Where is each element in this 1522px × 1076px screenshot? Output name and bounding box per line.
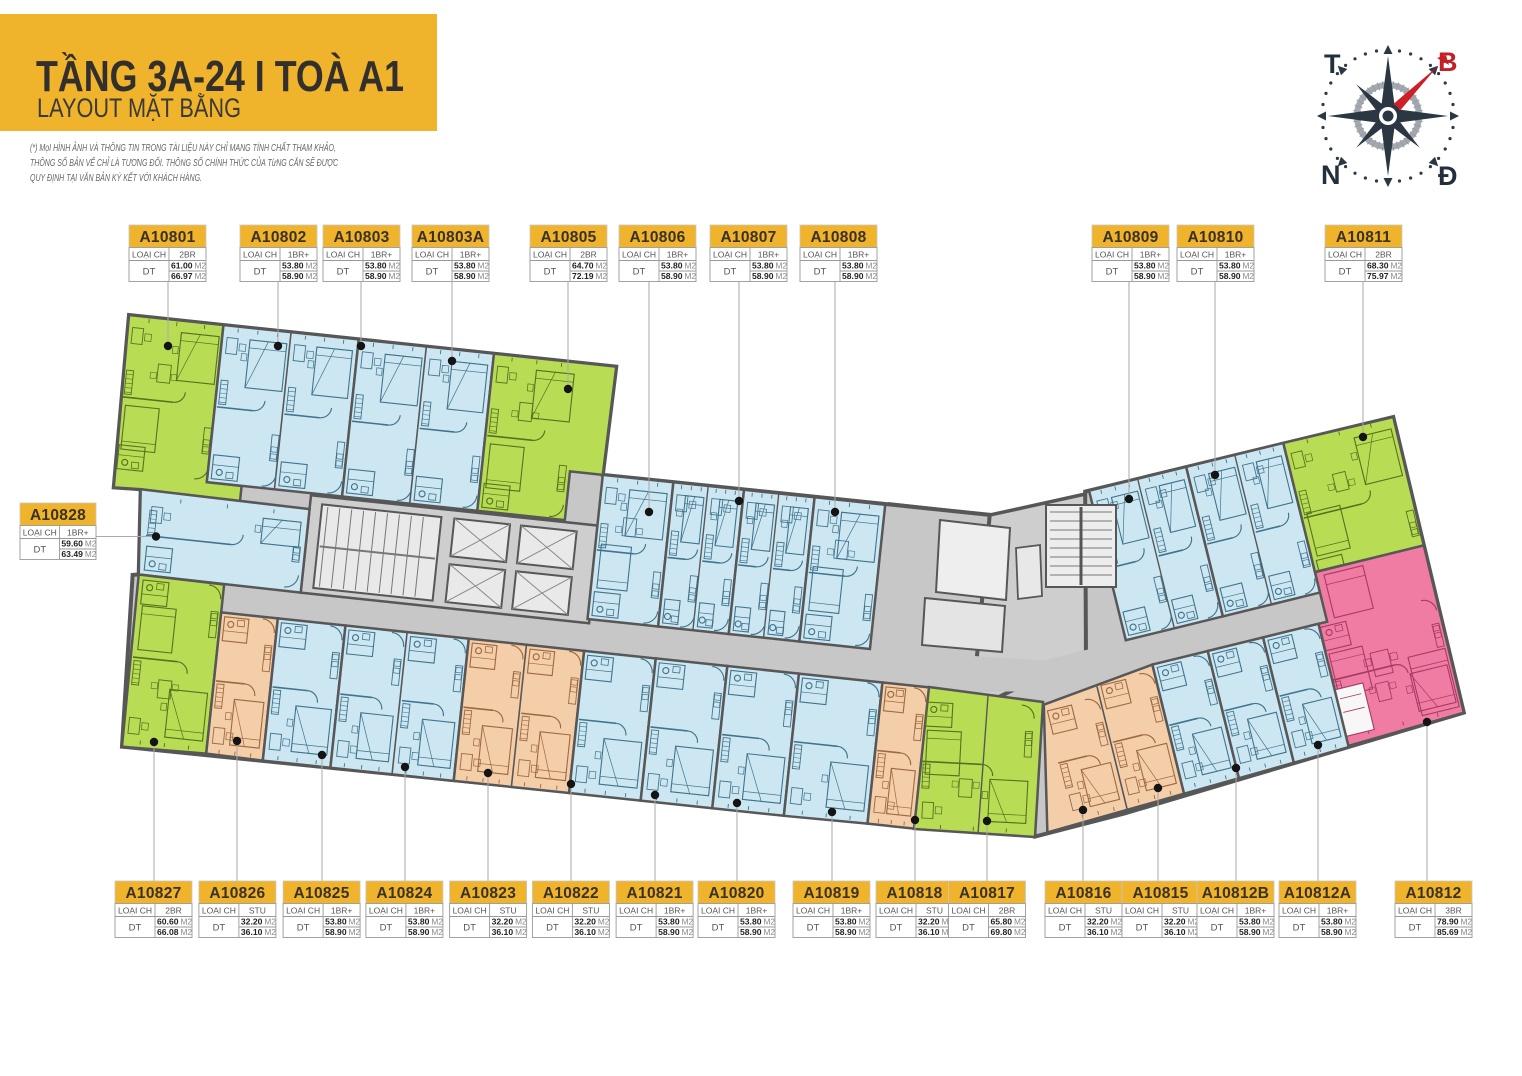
svg-text:58.90: 58.90 bbox=[1219, 271, 1241, 281]
svg-text:A10811: A10811 bbox=[1336, 229, 1391, 246]
svg-text:85.69: 85.69 bbox=[1437, 927, 1459, 937]
svg-text:STU: STU bbox=[500, 906, 517, 916]
svg-text:DT: DT bbox=[380, 923, 393, 934]
svg-text:A10823: A10823 bbox=[460, 885, 516, 902]
svg-text:DT: DT bbox=[633, 267, 646, 278]
svg-text:2BR: 2BR bbox=[580, 250, 597, 260]
svg-text:53.80: 53.80 bbox=[1239, 917, 1261, 927]
svg-text:36.10: 36.10 bbox=[1164, 927, 1186, 937]
svg-text:DT: DT bbox=[143, 267, 156, 278]
svg-text:A10805: A10805 bbox=[540, 229, 596, 246]
svg-text:M2: M2 bbox=[866, 261, 878, 271]
svg-text:32.20: 32.20 bbox=[574, 917, 596, 927]
svg-text:A10806: A10806 bbox=[629, 229, 685, 246]
svg-text:A10827: A10827 bbox=[125, 885, 181, 902]
svg-text:M2: M2 bbox=[181, 917, 193, 927]
svg-text:LOẠI CH: LOẠI CH bbox=[879, 906, 913, 916]
svg-text:M2: M2 bbox=[1014, 927, 1026, 937]
svg-text:DT: DT bbox=[213, 923, 226, 934]
svg-text:53.80: 53.80 bbox=[1219, 261, 1241, 271]
svg-text:61.00: 61.00 bbox=[171, 261, 193, 271]
svg-text:LOẠI CH: LOẠI CH bbox=[415, 250, 449, 260]
svg-text:36.10: 36.10 bbox=[241, 927, 263, 937]
svg-text:LOẠI CH: LOẠI CH bbox=[796, 906, 830, 916]
svg-text:M2: M2 bbox=[764, 927, 776, 937]
svg-text:M2: M2 bbox=[598, 927, 610, 937]
svg-text:58.90: 58.90 bbox=[325, 927, 347, 937]
svg-text:M2: M2 bbox=[306, 261, 318, 271]
svg-text:M2: M2 bbox=[515, 927, 527, 937]
svg-text:75.97: 75.97 bbox=[1367, 271, 1389, 281]
svg-text:53.80: 53.80 bbox=[325, 917, 347, 927]
svg-text:1BR+: 1BR+ bbox=[758, 250, 780, 260]
svg-text:LOẠI CH: LOẠI CH bbox=[369, 906, 403, 916]
svg-text:DT: DT bbox=[712, 923, 725, 934]
svg-text:M2: M2 bbox=[1243, 261, 1255, 271]
svg-text:LOẠI CH: LOẠI CH bbox=[951, 906, 985, 916]
svg-text:M2: M2 bbox=[764, 917, 776, 927]
svg-text:M2: M2 bbox=[349, 927, 361, 937]
svg-text:1BR+: 1BR+ bbox=[1140, 250, 1162, 260]
svg-text:M2: M2 bbox=[264, 917, 276, 927]
svg-text:LOẠI CH: LOẠI CH bbox=[453, 906, 487, 916]
svg-text:A10826: A10826 bbox=[209, 885, 265, 902]
svg-text:53.80: 53.80 bbox=[408, 917, 430, 927]
svg-text:32.20: 32.20 bbox=[241, 917, 263, 927]
svg-text:2BR: 2BR bbox=[999, 906, 1016, 916]
svg-text:DT: DT bbox=[630, 923, 643, 934]
svg-text:1BR+: 1BR+ bbox=[67, 528, 89, 538]
svg-text:LAYOUT MẶT BẰNG: LAYOUT MẶT BẰNG bbox=[37, 92, 241, 123]
svg-text:A10801: A10801 bbox=[139, 229, 195, 246]
svg-text:LOẠI CH: LOẠI CH bbox=[622, 250, 656, 260]
svg-text:DT: DT bbox=[544, 267, 557, 278]
svg-text:M2: M2 bbox=[389, 271, 401, 281]
svg-text:2BR: 2BR bbox=[1375, 250, 1392, 260]
svg-text:DT: DT bbox=[890, 923, 903, 934]
svg-text:LOẠI CH: LOẠI CH bbox=[803, 250, 837, 260]
svg-text:M2: M2 bbox=[431, 917, 443, 927]
svg-text:58.90: 58.90 bbox=[842, 271, 864, 281]
svg-text:32.20: 32.20 bbox=[1087, 917, 1109, 927]
svg-text:32.20: 32.20 bbox=[492, 917, 514, 927]
svg-text:DT: DT bbox=[426, 267, 439, 278]
svg-text:STU: STU bbox=[1095, 906, 1112, 916]
svg-text:LOẠI CH: LOẠI CH bbox=[202, 906, 236, 916]
svg-text:DT: DT bbox=[724, 267, 737, 278]
svg-text:58.90: 58.90 bbox=[752, 271, 774, 281]
svg-text:M2: M2 bbox=[264, 927, 276, 937]
svg-text:53.80: 53.80 bbox=[1134, 261, 1156, 271]
svg-text:M2: M2 bbox=[682, 917, 694, 927]
svg-text:60.60: 60.60 bbox=[157, 917, 179, 927]
svg-text:DT: DT bbox=[814, 267, 827, 278]
svg-text:LOẠI CH: LOẠI CH bbox=[619, 906, 653, 916]
svg-text:LOẠI CH: LOẠI CH bbox=[1048, 906, 1082, 916]
svg-text:M2: M2 bbox=[478, 271, 490, 281]
svg-text:2BR: 2BR bbox=[179, 250, 196, 260]
svg-text:M2: M2 bbox=[598, 917, 610, 927]
svg-text:53.80: 53.80 bbox=[752, 261, 774, 271]
svg-text:A10822: A10822 bbox=[543, 885, 599, 902]
svg-text:72.19: 72.19 bbox=[572, 271, 594, 281]
svg-text:M2: M2 bbox=[349, 917, 361, 927]
svg-text:58.90: 58.90 bbox=[408, 927, 430, 937]
svg-text:64.70: 64.70 bbox=[572, 261, 594, 271]
svg-text:M2: M2 bbox=[1111, 927, 1123, 937]
svg-text:DT: DT bbox=[33, 545, 46, 556]
svg-text:A10810: A10810 bbox=[1187, 229, 1243, 246]
svg-text:65.80: 65.80 bbox=[991, 917, 1013, 927]
svg-text:LOẠI CH: LOẠI CH bbox=[1200, 906, 1234, 916]
svg-text:DT: DT bbox=[807, 923, 820, 934]
svg-text:M2: M2 bbox=[389, 261, 401, 271]
svg-text:M2: M2 bbox=[859, 927, 871, 937]
svg-text:53.80: 53.80 bbox=[835, 917, 857, 927]
svg-text:A10821: A10821 bbox=[627, 885, 683, 902]
svg-text:M2: M2 bbox=[431, 927, 443, 937]
svg-text:STU: STU bbox=[926, 906, 943, 916]
svg-text:LOẠI CH: LOẠI CH bbox=[132, 250, 166, 260]
svg-text:A10825: A10825 bbox=[294, 885, 350, 902]
svg-text:68.30: 68.30 bbox=[1367, 261, 1389, 271]
svg-text:LOẠI CH: LOẠI CH bbox=[1095, 250, 1129, 260]
svg-text:M2: M2 bbox=[1263, 917, 1275, 927]
svg-text:M2: M2 bbox=[1345, 927, 1357, 937]
svg-text:58.90: 58.90 bbox=[740, 927, 762, 937]
svg-text:DT: DT bbox=[1409, 923, 1422, 934]
svg-text:M2: M2 bbox=[1111, 917, 1123, 927]
svg-text:DT: DT bbox=[1136, 923, 1149, 934]
svg-text:M2: M2 bbox=[195, 271, 207, 281]
svg-text:M2: M2 bbox=[1014, 917, 1026, 927]
svg-text:DT: DT bbox=[546, 923, 559, 934]
svg-text:DT: DT bbox=[1339, 267, 1352, 278]
svg-text:M2: M2 bbox=[1391, 271, 1403, 281]
svg-text:LOẠI CH: LOẠI CH bbox=[701, 906, 735, 916]
svg-text:M2: M2 bbox=[776, 261, 788, 271]
svg-text:A10824: A10824 bbox=[376, 885, 432, 902]
svg-text:DT: DT bbox=[254, 267, 267, 278]
svg-text:M2: M2 bbox=[1461, 917, 1473, 927]
svg-text:DT: DT bbox=[1191, 267, 1204, 278]
svg-text:M2: M2 bbox=[866, 271, 878, 281]
svg-text:63.49: 63.49 bbox=[61, 549, 83, 559]
svg-text:A10815: A10815 bbox=[1132, 885, 1188, 902]
svg-text:36.10: 36.10 bbox=[492, 927, 514, 937]
svg-text:58.90: 58.90 bbox=[454, 271, 476, 281]
svg-text:A10809: A10809 bbox=[1102, 229, 1158, 246]
svg-text:LOẠI CH: LOẠI CH bbox=[243, 250, 277, 260]
svg-text:DT: DT bbox=[129, 923, 142, 934]
svg-text:1BR+: 1BR+ bbox=[841, 906, 863, 916]
svg-text:A10803: A10803 bbox=[333, 229, 389, 246]
svg-text:A10802: A10802 bbox=[250, 229, 306, 246]
svg-text:A10820: A10820 bbox=[708, 885, 764, 902]
svg-text:LOẠI CH: LOẠI CH bbox=[713, 250, 747, 260]
svg-text:58.90: 58.90 bbox=[282, 271, 304, 281]
svg-text:M2: M2 bbox=[1243, 271, 1255, 281]
svg-text:M2: M2 bbox=[306, 271, 318, 281]
svg-text:THÔNG SỐ BẢN VẾ CHỈ LÀ TƯƠNG Đ: THÔNG SỐ BẢN VẾ CHỈ LÀ TƯƠNG ĐỐI. THÔNG … bbox=[30, 156, 338, 169]
svg-text:LOẠI CH: LOẠI CH bbox=[286, 906, 320, 916]
svg-text:M2: M2 bbox=[776, 271, 788, 281]
svg-text:M2: M2 bbox=[685, 271, 697, 281]
svg-text:A10808: A10808 bbox=[810, 229, 866, 246]
svg-text:53.80: 53.80 bbox=[740, 917, 762, 927]
svg-text:LOẠI CH: LOẠI CH bbox=[1328, 250, 1362, 260]
svg-text:1BR+: 1BR+ bbox=[331, 906, 353, 916]
svg-text:STU: STU bbox=[582, 906, 599, 916]
svg-text:DT: DT bbox=[463, 923, 476, 934]
svg-text:53.80: 53.80 bbox=[842, 261, 864, 271]
svg-text:A10803A: A10803A bbox=[417, 229, 485, 246]
svg-text:66.97: 66.97 bbox=[171, 271, 193, 281]
svg-text:M2: M2 bbox=[85, 549, 97, 559]
svg-text:M2: M2 bbox=[478, 261, 490, 271]
svg-text:M2: M2 bbox=[685, 261, 697, 271]
svg-text:STU: STU bbox=[249, 906, 266, 916]
svg-text:59.60: 59.60 bbox=[61, 539, 83, 549]
svg-text:Đ: Đ bbox=[1438, 161, 1458, 191]
svg-text:LOẠI CH: LOẠI CH bbox=[533, 250, 567, 260]
svg-text:M2: M2 bbox=[1345, 917, 1357, 927]
svg-text:32.20: 32.20 bbox=[1164, 917, 1186, 927]
svg-text:DT: DT bbox=[297, 923, 310, 934]
svg-text:LOẠI CH: LOẠI CH bbox=[326, 250, 360, 260]
svg-text:53.80: 53.80 bbox=[282, 261, 304, 271]
svg-text:M2: M2 bbox=[1461, 927, 1473, 937]
svg-text:M2: M2 bbox=[596, 271, 608, 281]
svg-text:69.80: 69.80 bbox=[991, 927, 1013, 937]
svg-text:A10807: A10807 bbox=[720, 229, 776, 246]
svg-text:STU: STU bbox=[1172, 906, 1189, 916]
svg-text:DT: DT bbox=[1059, 923, 1072, 934]
svg-text:3BR: 3BR bbox=[1445, 906, 1462, 916]
svg-text:LOẠI CH: LOẠI CH bbox=[1398, 906, 1432, 916]
svg-text:36.10: 36.10 bbox=[918, 927, 940, 937]
svg-text:DT: DT bbox=[1293, 923, 1306, 934]
svg-text:M2: M2 bbox=[181, 927, 193, 937]
svg-text:A10828: A10828 bbox=[30, 507, 86, 524]
svg-text:M2: M2 bbox=[195, 261, 207, 271]
svg-text:A10816: A10816 bbox=[1055, 885, 1111, 902]
svg-text:LOẠI CH: LOẠI CH bbox=[118, 906, 152, 916]
svg-text:1BR+: 1BR+ bbox=[746, 906, 768, 916]
svg-text:1BR+: 1BR+ bbox=[1245, 906, 1267, 916]
svg-text:36.10: 36.10 bbox=[1087, 927, 1109, 937]
svg-text:1BR+: 1BR+ bbox=[460, 250, 482, 260]
svg-text:T: T bbox=[1324, 49, 1341, 79]
svg-text:A10812B: A10812B bbox=[1202, 885, 1270, 902]
svg-text:A10817: A10817 bbox=[959, 885, 1015, 902]
svg-text:LOẠI CH: LOẠI CH bbox=[1282, 906, 1316, 916]
svg-text:58.90: 58.90 bbox=[835, 927, 857, 937]
svg-text:58.90: 58.90 bbox=[658, 927, 680, 937]
svg-text:32.20: 32.20 bbox=[918, 917, 940, 927]
svg-text:QUY ĐỊNH TẠI VĂN BẢN KÝ KẾT VỚ: QUY ĐỊNH TẠI VĂN BẢN KÝ KẾT VỚI KHÁCH HÀ… bbox=[30, 171, 202, 184]
svg-text:LOẠI CH: LOẠI CH bbox=[1125, 906, 1159, 916]
svg-text:1BR+: 1BR+ bbox=[414, 906, 436, 916]
svg-text:LOẠI CH: LOẠI CH bbox=[1180, 250, 1214, 260]
svg-text:1BR+: 1BR+ bbox=[1225, 250, 1247, 260]
svg-text:2BR: 2BR bbox=[165, 906, 182, 916]
svg-text:53.80: 53.80 bbox=[365, 261, 387, 271]
svg-text:DT: DT bbox=[1106, 267, 1119, 278]
svg-text:N: N bbox=[1321, 160, 1341, 190]
svg-text:58.90: 58.90 bbox=[1239, 927, 1261, 937]
svg-text:M2: M2 bbox=[596, 261, 608, 271]
svg-text:78.90: 78.90 bbox=[1437, 917, 1459, 927]
svg-text:M2: M2 bbox=[1158, 271, 1170, 281]
svg-text:DT: DT bbox=[962, 923, 975, 934]
svg-text:M2: M2 bbox=[1158, 261, 1170, 271]
svg-text:B: B bbox=[1438, 47, 1458, 77]
svg-text:M2: M2 bbox=[682, 927, 694, 937]
svg-text:53.80: 53.80 bbox=[1321, 917, 1343, 927]
svg-text:58.90: 58.90 bbox=[365, 271, 387, 281]
svg-text:1BR+: 1BR+ bbox=[664, 906, 686, 916]
svg-text:M2: M2 bbox=[1263, 927, 1275, 937]
svg-text:1BR+: 1BR+ bbox=[371, 250, 393, 260]
svg-text:1BR+: 1BR+ bbox=[1327, 906, 1349, 916]
svg-text:58.90: 58.90 bbox=[661, 271, 683, 281]
svg-text:A10819: A10819 bbox=[803, 885, 859, 902]
svg-text:58.90: 58.90 bbox=[1321, 927, 1343, 937]
svg-text:53.80: 53.80 bbox=[661, 261, 683, 271]
svg-text:1BR+: 1BR+ bbox=[848, 250, 870, 260]
svg-text:53.80: 53.80 bbox=[658, 917, 680, 927]
svg-text:36.10: 36.10 bbox=[574, 927, 596, 937]
svg-text:DT: DT bbox=[1211, 923, 1224, 934]
svg-text:DT: DT bbox=[337, 267, 350, 278]
svg-text:A10812A: A10812A bbox=[1284, 885, 1352, 902]
svg-text:LOẠI CH: LOẠI CH bbox=[535, 906, 569, 916]
svg-text:A10818: A10818 bbox=[886, 885, 942, 902]
svg-text:M2: M2 bbox=[85, 539, 97, 549]
svg-text:LOẠI CH: LOẠI CH bbox=[23, 528, 57, 538]
svg-text:M2: M2 bbox=[859, 917, 871, 927]
svg-text:1BR+: 1BR+ bbox=[667, 250, 689, 260]
svg-text:M2: M2 bbox=[515, 917, 527, 927]
svg-text:(*) MọI HÌNH ẢNH VÀ THÔNG TIN: (*) MọI HÌNH ẢNH VÀ THÔNG TIN TRONG TÀI … bbox=[30, 141, 336, 154]
svg-text:M2: M2 bbox=[1391, 261, 1403, 271]
svg-text:58.90: 58.90 bbox=[1134, 271, 1156, 281]
svg-text:53.80: 53.80 bbox=[454, 261, 476, 271]
svg-text:1BR+: 1BR+ bbox=[288, 250, 310, 260]
svg-text:A10812: A10812 bbox=[1405, 885, 1461, 902]
svg-text:66.08: 66.08 bbox=[157, 927, 179, 937]
